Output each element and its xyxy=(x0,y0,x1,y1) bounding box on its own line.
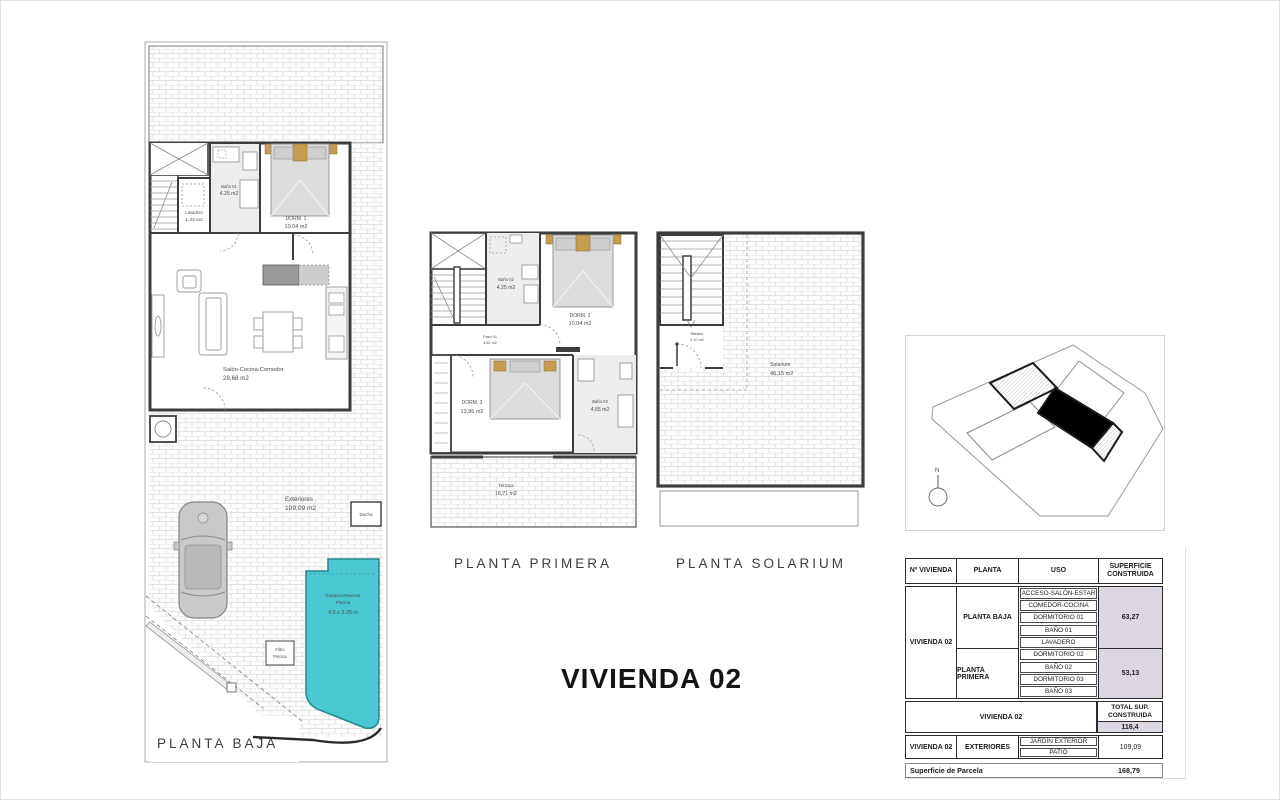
svg-text:Terraza: Terraza xyxy=(498,483,514,488)
svg-text:4.25 m2: 4.25 m2 xyxy=(497,285,516,291)
uso-row: LAVADERO xyxy=(1020,637,1097,648)
svg-text:Baño 01: Baño 01 xyxy=(221,184,237,189)
label-exteriores: Exteriores xyxy=(285,496,313,503)
svg-text:DORM. 2: DORM. 2 xyxy=(570,313,591,319)
svg-text:Lavadero: Lavadero xyxy=(185,210,203,215)
planta-primera-plan: Terraza 16,71 m2 Baño 02 4.25 m2 xyxy=(428,225,640,535)
site-plan: N xyxy=(905,335,1165,531)
cell-planta-baja: PLANTA BAJA xyxy=(957,587,1018,649)
svg-text:10,04 m2: 10,04 m2 xyxy=(569,321,592,327)
ext-superficie: 109,09 xyxy=(1098,736,1162,758)
svg-text:13,95 m2: 13,95 m2 xyxy=(461,409,484,415)
surface-table: Nº VIVIENDA PLANTA USO SUPERFICIE CONSTR… xyxy=(905,558,1163,778)
lower-terrace-edge xyxy=(660,491,858,526)
header-uso: USO xyxy=(1018,559,1098,583)
svg-text:Espacio Reserva: Espacio Reserva xyxy=(326,593,361,598)
svg-text:DORM. 1: DORM. 1 xyxy=(286,216,307,222)
parcela-row: Superficie de Parcela 168,79 xyxy=(905,763,1163,778)
planta-baja-plan: Lavadero 1,33 m2 Baño 01 4.25 m2 DORM. 1 xyxy=(143,40,390,767)
header-num-vivienda: Nº VIVIENDA xyxy=(906,559,956,583)
side-paving xyxy=(350,143,383,408)
svg-text:Filtro: Filtro xyxy=(275,647,285,652)
ext-uso-row: PATIO xyxy=(1020,748,1097,757)
page-title: VIVIENDA 02 xyxy=(561,663,742,695)
frame-line-vertical xyxy=(1185,548,1186,779)
superficie-primera: 53,13 xyxy=(1099,649,1162,698)
superficie-baja: 63,27 xyxy=(1099,587,1162,649)
svg-text:4.5 x 2.25 m: 4.5 x 2.25 m xyxy=(328,610,358,616)
cell-planta-primera: PLANTA PRIMERA xyxy=(957,649,1018,698)
room-bano-03: Baño 03 4,65 m2 xyxy=(573,355,636,453)
wardrobe xyxy=(431,355,451,453)
uso-row: BAÑO 03 xyxy=(1020,686,1097,697)
entry-porch-roof xyxy=(150,143,208,175)
table-header-row: Nº VIVIENDA PLANTA USO SUPERFICIE CONSTR… xyxy=(905,558,1163,584)
uso-row: ACCESO-SALÓN-ESTAR xyxy=(1020,588,1097,599)
ext-uso-row: JARDÍN EXTERIOR xyxy=(1020,737,1097,746)
svg-text:Piscina: Piscina xyxy=(273,654,287,659)
svg-text:Piscina: Piscina xyxy=(336,600,351,605)
table-main-block: VIVIENDA 02 PLANTA BAJA PLANTA PRIMERA A… xyxy=(905,586,1163,699)
cell-vivienda: VIVIENDA 02 xyxy=(906,587,956,698)
svg-text:Paso 01: Paso 01 xyxy=(483,335,497,339)
label-solarium: Solarium xyxy=(770,362,790,368)
parcela-label: Superficie de Parcela xyxy=(906,766,1096,775)
caption-planta-baja: PLANTA BAJA xyxy=(157,736,278,751)
uso-row: BAÑO 02 xyxy=(1020,662,1097,673)
svg-text:2,10 m2: 2,10 m2 xyxy=(690,338,704,342)
svg-text:1,33 m2: 1,33 m2 xyxy=(185,217,203,223)
svg-text:4.25 m2: 4.25 m2 xyxy=(220,191,239,197)
table-total-row: VIVIENDA 02 TOTAL SUP. CONSTRUIDA 116,4 xyxy=(905,701,1163,733)
svg-text:DORM. 3: DORM. 3 xyxy=(462,400,483,406)
uso-row: DORMITORIO 03 xyxy=(1020,674,1097,685)
svg-text:4,65 m2: 4,65 m2 xyxy=(591,407,610,413)
parcela-value: 168,79 xyxy=(1096,766,1162,775)
room-lavadero: Lavadero 1,33 m2 xyxy=(178,178,210,233)
svg-text:28,68 m2: 28,68 m2 xyxy=(223,375,249,382)
planta-solarium-plan: Rellano 2,10 m2 Solarium 46,15 m2 xyxy=(655,228,890,533)
ext-label-cell: EXTERIORES xyxy=(956,736,1018,758)
pool-filter-box: Filtro Piscina xyxy=(266,641,294,665)
uso-row: BAÑO 01 xyxy=(1020,625,1097,636)
header-superficie: SUPERFICIE CONSTRUIDA xyxy=(1098,559,1162,583)
frame-line-horizontal xyxy=(905,778,1186,779)
pool: Espacio Reserva Piscina 4.5 x 2.25 m xyxy=(306,559,379,728)
svg-text:46,15 m2: 46,15 m2 xyxy=(770,371,793,377)
room-bano-01: Baño 01 4.25 m2 xyxy=(210,143,260,233)
svg-text:Baño 02: Baño 02 xyxy=(498,277,514,282)
total-header: TOTAL SUP. CONSTRUIDA xyxy=(1097,701,1163,722)
svg-text:Rellano: Rellano xyxy=(691,332,704,336)
svg-text:Ducha: Ducha xyxy=(359,512,373,517)
header-planta: PLANTA xyxy=(956,559,1018,583)
floorplan-sheet: Lavadero 1,33 m2 Baño 01 4.25 m2 DORM. 1 xyxy=(0,0,1280,800)
table-exteriores-block: VIVIENDA 02 EXTERIORES JARDÍN EXTERIOR P… xyxy=(905,735,1163,759)
caption-planta-solarium: PLANTA SOLARIUM xyxy=(676,556,846,571)
staircase xyxy=(660,235,723,327)
uso-row: DORMITORIO 02 xyxy=(1020,649,1097,660)
uso-row: COMEDOR-COCINA xyxy=(1020,600,1097,611)
car-top-view xyxy=(174,502,232,618)
ducha-box: Ducha xyxy=(351,502,381,526)
caption-planta-primera: PLANTA PRIMERA xyxy=(454,556,612,571)
label-salon: Salón-Cocina-Comedor xyxy=(223,367,284,373)
svg-text:3.60 m2: 3.60 m2 xyxy=(483,341,497,345)
total-vivienda-cell: VIVIENDA 02 xyxy=(905,701,1097,733)
svg-text:16,71 m2: 16,71 m2 xyxy=(495,491,517,497)
uso-row: DORMITORIO 01 xyxy=(1020,612,1097,623)
exterior-shower-tray xyxy=(150,416,176,442)
svg-text:109,09 m2: 109,09 m2 xyxy=(285,505,316,512)
rear-patio-paving xyxy=(149,46,383,143)
total-value: 116,4 xyxy=(1097,722,1163,733)
svg-text:N: N xyxy=(935,468,939,474)
svg-text:10.04 m2: 10.04 m2 xyxy=(285,224,308,230)
ext-vivienda-cell: VIVIENDA 02 xyxy=(906,736,956,758)
svg-text:Baño 03: Baño 03 xyxy=(592,399,608,404)
terraza: Terraza 16,71 m2 xyxy=(431,457,636,527)
